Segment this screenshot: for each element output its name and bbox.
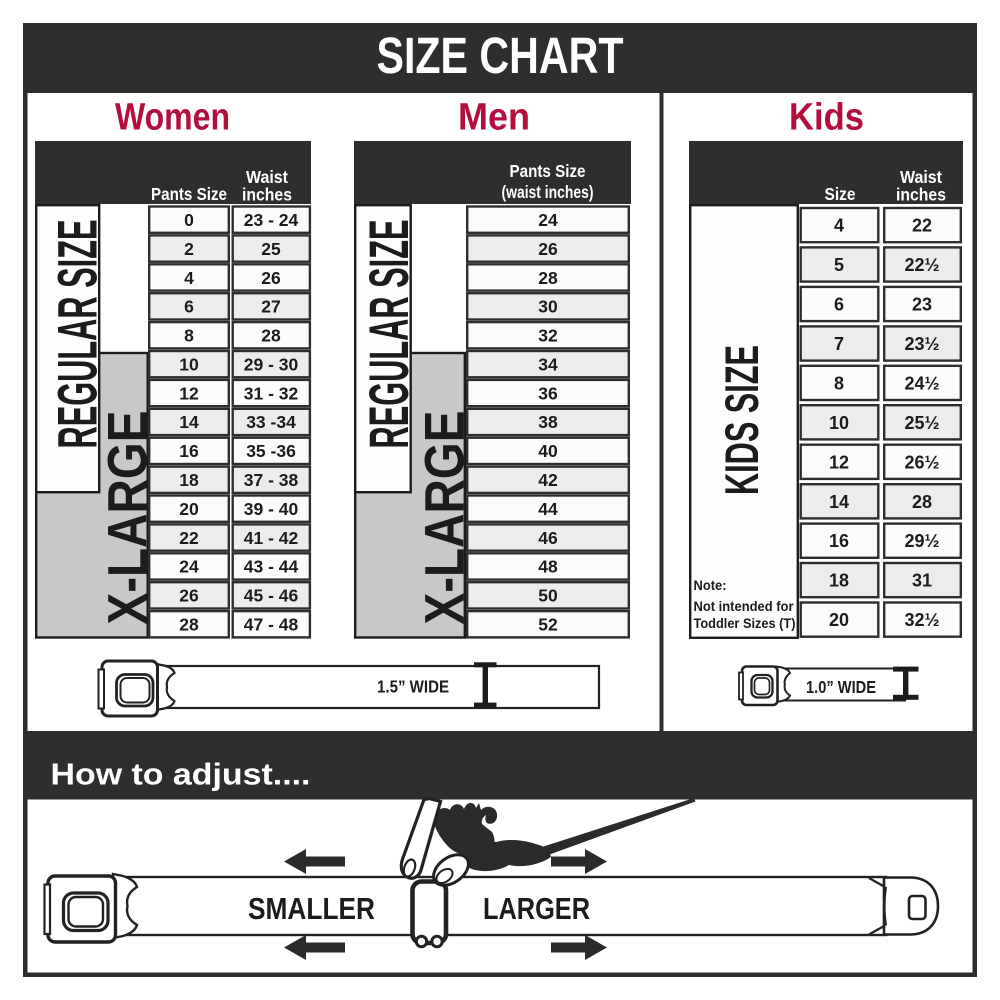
svg-text:52: 52 (538, 615, 558, 635)
svg-text:18: 18 (829, 571, 849, 591)
svg-text:44: 44 (538, 499, 558, 519)
svg-text:39 - 40: 39 - 40 (244, 499, 299, 519)
svg-text:22: 22 (912, 216, 932, 236)
svg-text:26: 26 (261, 268, 281, 288)
svg-text:inches: inches (896, 185, 946, 205)
svg-text:SIZE CHART: SIZE CHART (377, 27, 624, 84)
svg-text:Note:: Note: (694, 577, 727, 593)
svg-text:1.0” WIDE: 1.0” WIDE (806, 677, 876, 697)
svg-text:28: 28 (912, 492, 932, 512)
svg-text:28: 28 (538, 268, 558, 288)
svg-text:30: 30 (538, 297, 558, 317)
svg-text:12: 12 (179, 383, 199, 403)
svg-text:20: 20 (829, 610, 849, 630)
svg-text:KIDS SIZE: KIDS SIZE (715, 345, 768, 495)
svg-text:10: 10 (829, 413, 849, 433)
svg-text:6: 6 (184, 297, 194, 317)
svg-text:38: 38 (538, 412, 558, 432)
svg-text:REGULAR SIZE: REGULAR SIZE (357, 220, 420, 449)
svg-text:14: 14 (179, 412, 199, 432)
svg-text:Toddler Sizes (T): Toddler Sizes (T) (694, 615, 796, 631)
svg-text:14: 14 (829, 492, 849, 512)
svg-text:26: 26 (179, 586, 199, 606)
svg-text:23½: 23½ (904, 334, 939, 354)
svg-text:Pants Size: Pants Size (510, 161, 586, 181)
svg-text:23 - 24: 23 - 24 (244, 210, 299, 230)
svg-text:8: 8 (834, 373, 844, 393)
svg-text:31 - 32: 31 - 32 (244, 383, 299, 403)
svg-text:Size: Size (825, 184, 856, 204)
svg-text:24: 24 (538, 210, 558, 230)
svg-text:7: 7 (834, 334, 844, 354)
svg-text:31: 31 (912, 571, 932, 591)
svg-text:24: 24 (179, 557, 199, 577)
svg-text:42: 42 (538, 470, 558, 490)
svg-text:20: 20 (179, 499, 199, 519)
svg-text:25½: 25½ (904, 413, 939, 433)
svg-text:33 -34: 33 -34 (246, 412, 296, 432)
svg-text:16: 16 (829, 531, 849, 551)
svg-text:32: 32 (538, 326, 558, 346)
svg-text:1.5” WIDE: 1.5” WIDE (377, 677, 449, 697)
svg-text:22½: 22½ (904, 255, 939, 275)
svg-text:26½: 26½ (904, 452, 939, 472)
svg-text:16: 16 (179, 441, 199, 461)
svg-text:5: 5 (834, 255, 844, 275)
svg-text:29 - 30: 29 - 30 (244, 354, 299, 374)
svg-text:22: 22 (179, 528, 199, 548)
svg-text:inches: inches (242, 185, 292, 205)
svg-text:47 - 48: 47 - 48 (244, 615, 299, 635)
svg-text:41 - 42: 41 - 42 (244, 528, 299, 548)
svg-text:35 -36: 35 -36 (246, 441, 296, 461)
svg-text:12: 12 (829, 452, 849, 472)
svg-text:46: 46 (538, 528, 558, 548)
svg-text:50: 50 (538, 586, 558, 606)
svg-text:32½: 32½ (904, 610, 939, 630)
svg-text:Women: Women (115, 97, 230, 139)
svg-text:29½: 29½ (904, 531, 939, 551)
svg-text:2: 2 (184, 239, 194, 259)
svg-text:34: 34 (538, 354, 558, 374)
svg-text:Men: Men (458, 97, 530, 139)
svg-text:How to adjust....: How to adjust.... (51, 758, 311, 792)
svg-text:40: 40 (538, 441, 558, 461)
svg-text:Not intended for: Not intended for (694, 598, 794, 614)
svg-text:18: 18 (179, 470, 199, 490)
svg-text:26: 26 (538, 239, 558, 259)
svg-text:SMALLER: SMALLER (248, 891, 375, 926)
svg-text:10: 10 (179, 354, 199, 374)
svg-text:4: 4 (834, 216, 844, 236)
svg-text:0: 0 (184, 210, 194, 230)
svg-text:43 - 44: 43 - 44 (244, 557, 299, 577)
svg-text:6: 6 (834, 295, 844, 315)
svg-text:23: 23 (912, 295, 932, 315)
svg-text:8: 8 (184, 326, 194, 346)
svg-text:Pants Size: Pants Size (151, 184, 227, 204)
svg-text:LARGER: LARGER (483, 891, 590, 926)
svg-text:(waist inches): (waist inches) (502, 182, 594, 202)
svg-text:37 - 38: 37 - 38 (244, 470, 299, 490)
svg-text:28: 28 (179, 615, 199, 635)
svg-text:48: 48 (538, 557, 558, 577)
svg-text:36: 36 (538, 383, 558, 403)
svg-text:25: 25 (261, 239, 281, 259)
svg-text:27: 27 (261, 297, 280, 317)
svg-text:28: 28 (261, 326, 281, 346)
svg-text:Kids: Kids (789, 97, 864, 139)
svg-text:45 - 46: 45 - 46 (244, 586, 299, 606)
svg-text:24½: 24½ (904, 373, 939, 393)
svg-text:4: 4 (184, 268, 194, 288)
